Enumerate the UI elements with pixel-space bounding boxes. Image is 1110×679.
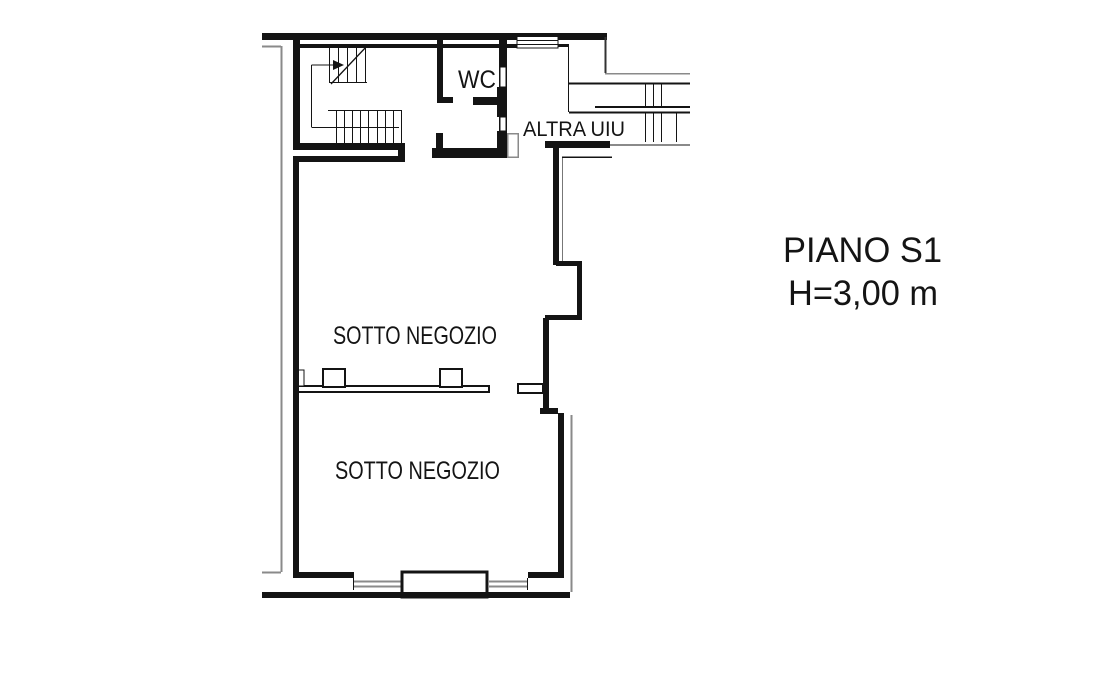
upper-room-top-wall — [293, 156, 405, 162]
wc-bottom-wall — [432, 148, 508, 158]
sotto-negozio-lower-label: SOTTO NEGOZIO — [335, 457, 500, 485]
rooms-divider — [296, 369, 489, 392]
left-wall — [293, 156, 405, 578]
wc-right-wall — [499, 40, 507, 67]
staircase-main — [293, 40, 405, 158]
right-wall — [518, 141, 612, 578]
divider-wall-stub — [518, 384, 543, 393]
column-pier — [323, 369, 345, 387]
floorplan-page: WC ALTRA UIU SOTTO NEGOZIO SOTTO NEGOZIO… — [0, 0, 1110, 679]
height-label: H=3,00 m — [788, 274, 938, 313]
floor-annotation: PIANO S1 H=3,00 m — [783, 231, 942, 313]
bottom-window-left — [353, 578, 402, 590]
wc-window-upper — [500, 67, 507, 87]
top-wall — [262, 33, 607, 48]
wc-left-wall — [437, 40, 443, 103]
stair-bottom-wall — [293, 143, 405, 150]
neighbor-stair-lower-treads — [646, 113, 677, 142]
bottom-wall — [262, 572, 570, 598]
bottom-window-right — [487, 578, 528, 590]
stair-left-wall — [293, 40, 300, 150]
stair-lower-treads — [328, 110, 402, 143]
neighbor-stair-upper-treads — [646, 84, 662, 106]
wc-window-lower — [500, 117, 507, 131]
divider-columns — [323, 369, 462, 387]
sotto-negozio-upper-label: SOTTO NEGOZIO — [333, 322, 497, 350]
wc-outer-ledge — [508, 134, 518, 157]
top-wall-window — [517, 37, 558, 49]
right-wall-niche — [545, 261, 582, 320]
piano-label: PIANO S1 — [783, 231, 942, 270]
wc-partition-arm — [473, 97, 497, 105]
altra-uiu-label: ALTRA UIU — [523, 118, 625, 141]
bottom-outer-wall — [262, 592, 570, 598]
column-pier — [440, 369, 462, 387]
wc-label: WC — [458, 66, 496, 94]
wc-walls — [432, 40, 518, 158]
floor-plan-svg: WC ALTRA UIU SOTTO NEGOZIO SOTTO NEGOZIO… — [0, 0, 1110, 679]
